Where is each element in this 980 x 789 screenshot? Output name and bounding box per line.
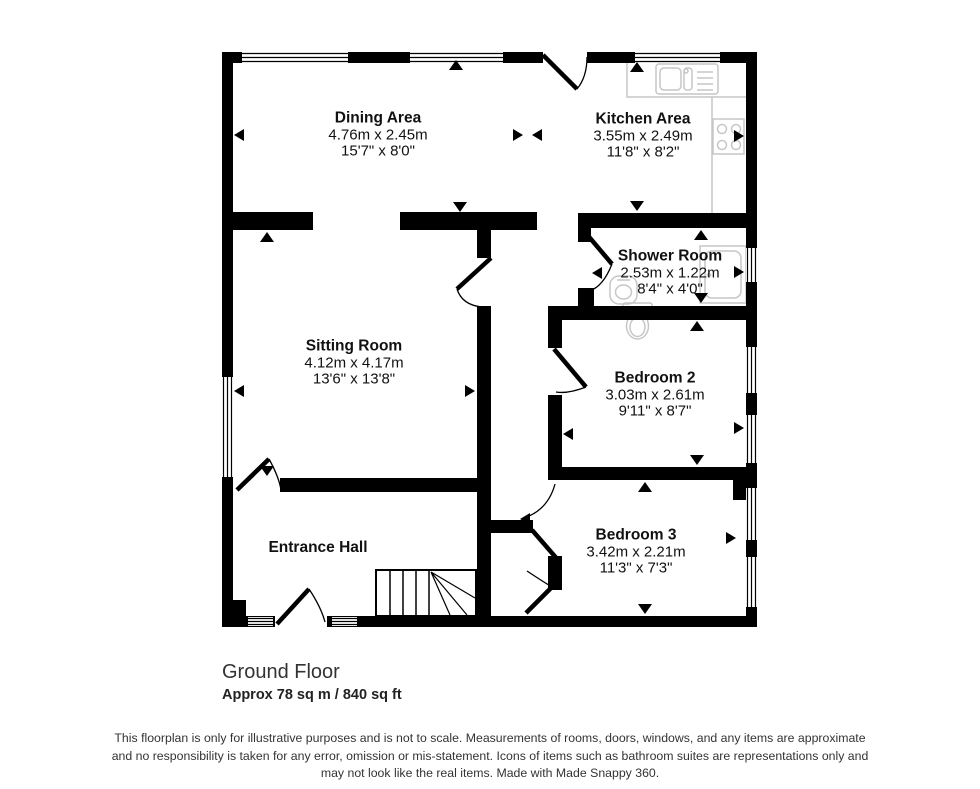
window-bedroom2-1 — [746, 347, 757, 393]
arrow-left-dining — [234, 129, 244, 141]
arrow-left-kitchen-start — [532, 129, 542, 141]
door-bedroom2 — [554, 349, 586, 392]
floor-area: Approx 78 sq m / 840 sq ft — [222, 687, 402, 703]
room-label-kitchen: Kitchen Area 3.55m x 2.49m 11'8" x 8'2" — [593, 111, 692, 161]
room-dim-metric: 2.53m x 1.22m — [618, 265, 722, 282]
room-dim-imperial: 11'3" x 7'3" — [586, 560, 685, 577]
window-dining-1 — [242, 52, 348, 63]
window-hall-sidelight-left — [248, 617, 273, 626]
room-dim-metric: 3.55m x 2.49m — [593, 128, 692, 145]
room-name: Bedroom 2 — [605, 370, 704, 387]
room-name: Sitting Room — [304, 338, 403, 355]
arrow-right-dining-end — [513, 129, 523, 141]
room-label-dining: Dining Area 4.76m x 2.45m 15'7" x 8'0" — [328, 110, 427, 160]
door-sitting-room — [457, 258, 491, 307]
arrow-right-sitting — [465, 385, 475, 397]
window-kitchen — [635, 52, 720, 63]
room-name: Kitchen Area — [593, 111, 692, 128]
window-bedroom2-2 — [746, 415, 757, 463]
disclaimer-line-2: and no responsibility is taken for any e… — [70, 748, 910, 766]
arrow-left-bedroom2 — [563, 428, 573, 440]
door-front-entrance — [277, 589, 325, 624]
floorplan-page: Dining Area 4.76m x 2.45m 15'7" x 8'0" K… — [0, 0, 980, 789]
window-sitting — [222, 377, 233, 477]
room-dim-metric: 4.12m x 4.17m — [304, 355, 403, 372]
arrow-up-bedroom3 — [638, 482, 652, 492]
floor-title: Ground Floor — [222, 661, 340, 684]
room-name: Shower Room — [618, 248, 722, 265]
arrow-down-bedroom2 — [690, 455, 704, 465]
door-kitchen-top — [543, 55, 587, 89]
room-label-shower: Shower Room 2.53m x 1.22m 8'4" x 4'0" — [618, 248, 722, 298]
arrow-down-kitchen — [630, 201, 644, 211]
arrow-down-bedroom3 — [638, 604, 652, 614]
room-label-hall: Entrance Hall — [268, 540, 367, 557]
arrow-down-sitting — [260, 466, 274, 476]
arrow-up-sitting — [260, 232, 274, 242]
room-dim-metric: 3.03m x 2.61m — [605, 387, 704, 404]
room-dim-imperial: 8'4" x 4'0" — [618, 281, 722, 298]
room-label-sitting: Sitting Room 4.12m x 4.17m 13'6" x 13'8" — [304, 338, 403, 388]
room-dim-imperial: 11'8" x 8'2" — [593, 144, 692, 161]
room-dim-imperial: 9'11" x 8'7" — [605, 403, 704, 420]
arrow-up-kitchen — [630, 62, 644, 72]
arrow-right-kitchen — [734, 130, 744, 142]
arrow-right-bedroom2 — [734, 422, 744, 434]
room-name: Entrance Hall — [268, 540, 367, 557]
window-bedroom3-2 — [746, 557, 757, 607]
room-label-bedroom3: Bedroom 3 3.42m x 2.21m 11'3" x 7'3" — [586, 527, 685, 577]
room-dim-metric: 4.76m x 2.45m — [328, 127, 427, 144]
arrow-down-dining — [453, 202, 467, 212]
arrow-left-shower — [592, 267, 602, 279]
window-bedroom3-1 — [746, 488, 757, 540]
arrow-up-bedroom2 — [690, 321, 704, 331]
arrow-left-sitting — [234, 385, 244, 397]
window-hall-sidelight-right — [332, 617, 357, 626]
door-hall-to-sitting — [237, 459, 281, 490]
disclaimer: This floorplan is only for illustrative … — [70, 730, 910, 783]
room-name: Bedroom 3 — [586, 527, 685, 544]
window-shower — [746, 248, 757, 282]
arrow-right-shower — [734, 266, 744, 278]
room-name: Dining Area — [328, 110, 427, 127]
room-dim-metric: 3.42m x 2.21m — [586, 544, 685, 561]
disclaimer-line-1: This floorplan is only for illustrative … — [70, 730, 910, 748]
room-dim-imperial: 13'6" x 13'8" — [304, 371, 403, 388]
arrow-up-shower — [694, 230, 708, 240]
arrow-right-bedroom3 — [726, 532, 736, 544]
disclaimer-line-3: may not look like the real items. Made w… — [70, 765, 910, 783]
plan-layer — [0, 0, 980, 789]
room-label-bedroom2: Bedroom 2 3.03m x 2.61m 9'11" x 8'7" — [605, 370, 704, 420]
stairs — [376, 570, 476, 616]
room-dim-imperial: 15'7" x 8'0" — [328, 143, 427, 160]
